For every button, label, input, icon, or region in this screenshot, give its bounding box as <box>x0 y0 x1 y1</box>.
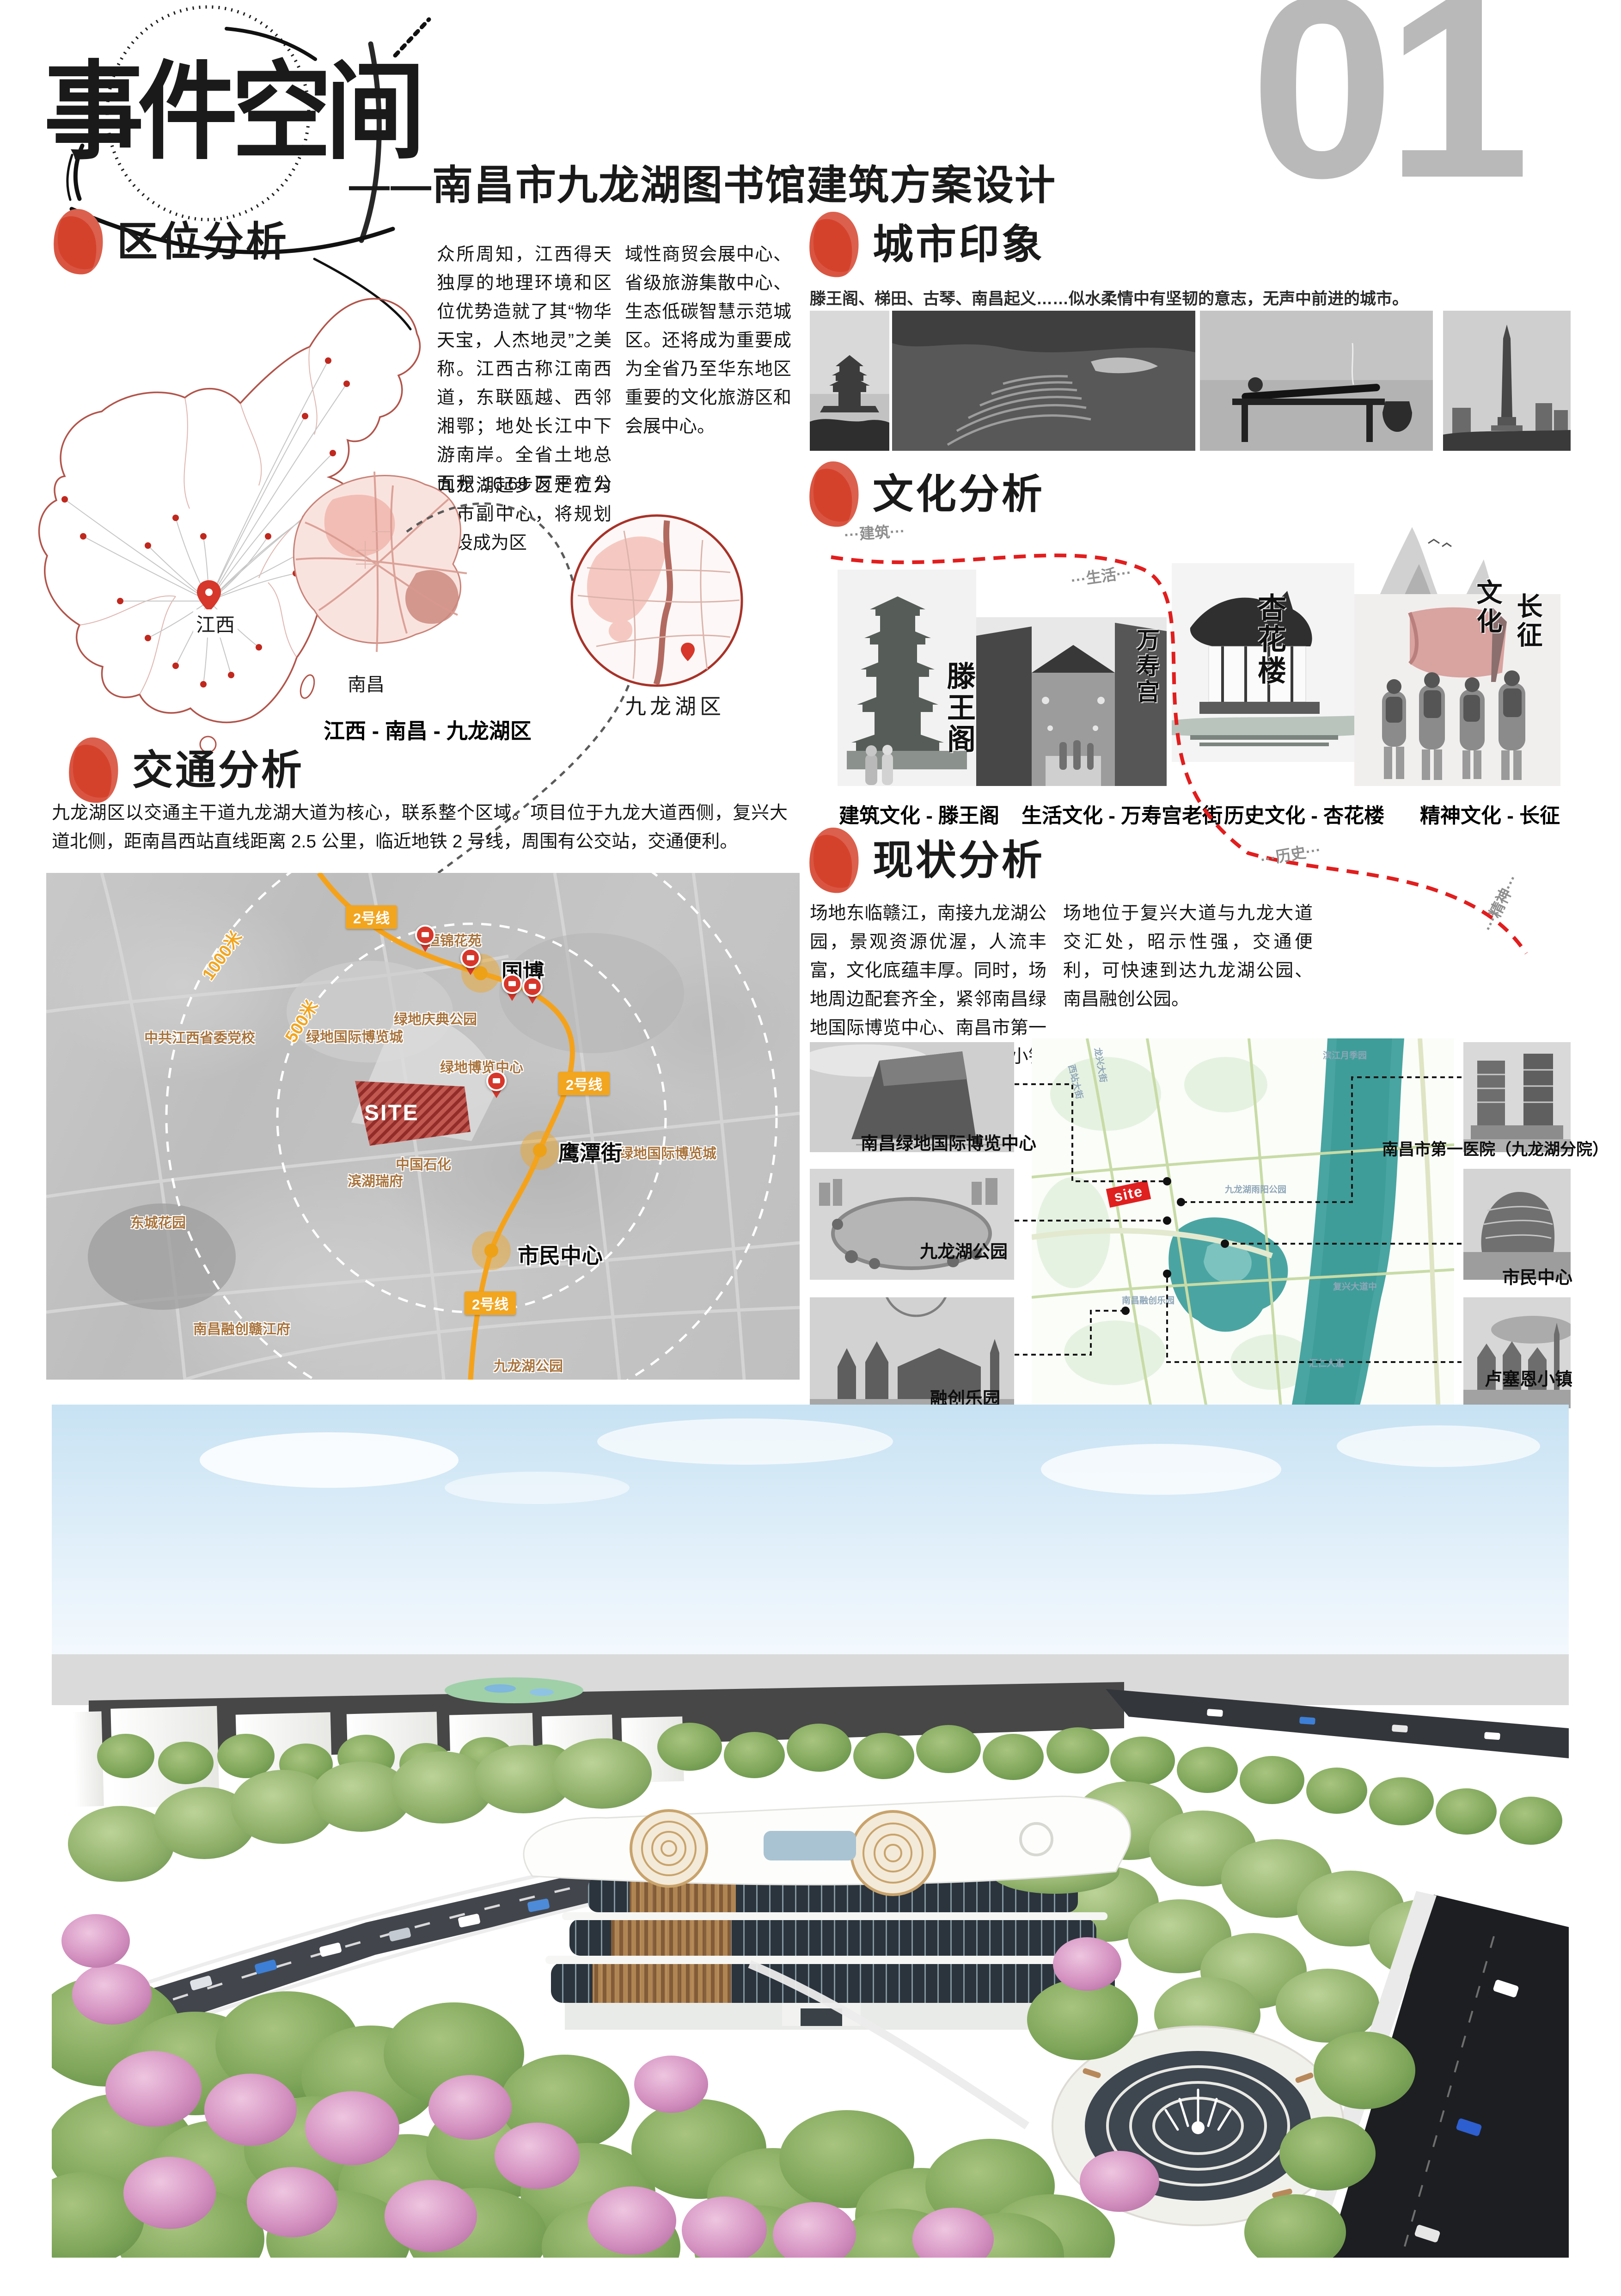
calligraphy-changzheng: 文化 长征 <box>1469 579 1547 650</box>
city-photo-guqin <box>1200 311 1433 451</box>
culture-caption-3: 历史文化 - 杏花楼 <box>1224 799 1384 829</box>
page-number: 01 <box>1250 0 1522 216</box>
map-place-label: 九龙湖公园 <box>494 1355 563 1375</box>
map-place-label: 绿地国际博览城 <box>306 1025 403 1046</box>
street-label: 汇仁大道 <box>1309 1357 1344 1369</box>
calligraphy-tengwangge: 滕王阁 <box>937 661 979 755</box>
section-title-location: 区位分析 <box>117 221 289 262</box>
section-header-city: 城市印象 <box>809 212 1045 277</box>
status-photo-jiulong-lake-park <box>810 1169 1014 1280</box>
jiulong-lake-inset-map <box>569 512 745 689</box>
route-label-life: ···生活··· <box>1069 560 1132 590</box>
street-label: 九龙湖雨阳公园 <box>1225 1183 1286 1195</box>
metro-line-badge: 2号线 <box>465 1291 516 1315</box>
status-photo-label: 南昌绿地国际博览中心 <box>861 1129 1036 1154</box>
section-header-traffic: 交通分析 <box>68 737 304 803</box>
status-photo-label: 卢塞恩小镇 <box>1485 1365 1572 1390</box>
section-title-status: 现状分析 <box>873 840 1045 881</box>
poster-page: 事件空间 ——南昌市九龙湖图书馆建筑方案设计 01 区位分析 众所周知，江西得天… <box>0 0 1621 2296</box>
aerial-rendering-library <box>52 1405 1569 2258</box>
bus-stop-pin-icon <box>415 925 435 952</box>
map-place-label: 中国石化 <box>396 1153 451 1173</box>
city-photo-monument-tower <box>1443 311 1571 451</box>
bus-stop-pin-icon <box>460 948 481 975</box>
location-paragraph-3: 域性商贸会展中心、省级旅游集散中心、生态低碳智慧示范城区。还将成为重要成为全省乃… <box>625 240 791 441</box>
city-photo-tengwang-pavilion <box>810 311 889 451</box>
street-label: 南昌融创乐园 <box>1122 1294 1174 1306</box>
traffic-paragraph: 九龙湖区以交通主干道九龙湖大道为核心，联系整个区域。项目位于九龙大道西侧，复兴大… <box>52 799 788 856</box>
map-place-label: 绿地国际博览城 <box>619 1142 716 1162</box>
bus-stop-pin-icon <box>522 976 543 1004</box>
poster-subtitle: ——南昌市九龙湖图书馆建筑方案设计 <box>349 153 1056 211</box>
province-label: 江西 <box>193 609 238 638</box>
culture-caption-1: 建筑文化 - 滕王阁 <box>839 799 999 829</box>
map-place-label: 滨湖瑞府 <box>348 1170 403 1190</box>
section-title-culture: 文化分析 <box>873 474 1045 515</box>
section-title-traffic: 交通分析 <box>132 750 304 791</box>
red-ink-seal-icon <box>65 735 122 806</box>
section-title-city: 城市印象 <box>873 224 1045 265</box>
status-photo-label: 南昌市第一医院（九龙湖分院） <box>1382 1136 1609 1160</box>
status-photo-first-hospital <box>1463 1042 1571 1152</box>
map-place-label: 绿地庆典公园 <box>394 1008 477 1028</box>
red-ink-seal-icon <box>49 206 107 277</box>
status-photo-label: 市民中心 <box>1502 1263 1572 1289</box>
traffic-satellite-map: 2号线 2号线 2号线 1000米 500米 恒锦花苑 中共江西省委党校 绿地庆… <box>46 873 800 1380</box>
section-header-status: 现状分析 <box>809 828 1045 893</box>
map-place-label: 南昌融创赣江府 <box>193 1318 290 1338</box>
site-area-label: SITE <box>364 1100 419 1126</box>
street-label: 复兴大道中 <box>1333 1280 1377 1292</box>
route-label-history: ···历史··· <box>1259 837 1322 870</box>
map-place-label: 中共江西省委党校 <box>144 1026 255 1047</box>
section-header-location: 区位分析 <box>53 209 289 275</box>
status-photo-label: 九龙湖公园 <box>920 1237 1008 1263</box>
red-ink-seal-icon <box>805 459 863 530</box>
street-label: 滨江月季园 <box>1323 1049 1367 1061</box>
map-place-label: 东城花园 <box>130 1211 186 1232</box>
bus-stop-pin-icon <box>502 974 522 1001</box>
city-caption: 滕王阁、梯田、古琴、南昌起义……似水柔情中有坚韧的意志，无声中前进的城市。 <box>810 286 1408 309</box>
station-label-yingtanjie: 鹰潭街 <box>558 1136 622 1167</box>
status-paragraph-2: 场地位于复兴大道与九龙大道交汇处，昭示性强，交通便利，可快速到达九龙湖公园、南昌… <box>1063 899 1313 1014</box>
city-photo-terraced-fields <box>892 311 1195 451</box>
culture-caption-4: 精神文化 - 长征 <box>1420 799 1560 829</box>
red-ink-seal-icon <box>805 825 863 896</box>
poster-title: 事件空间 <box>44 59 419 166</box>
status-photo-lucerne-town <box>1463 1297 1571 1408</box>
map-place-label: 绿地博览中心 <box>440 1056 523 1076</box>
culture-caption-2: 生活文化 - 万寿宫老街 <box>1022 799 1223 829</box>
section-header-culture: 文化分析 <box>809 461 1045 527</box>
status-site-map: 滨江月季园 西站大街 龙兴大街 九龙湖雨阳公园 复兴大道中 汇仁大道 南昌融创乐… <box>1032 1038 1454 1412</box>
inset-label: 九龙湖区 <box>625 690 725 720</box>
station-label-shiminzhongxin: 市民中心 <box>518 1239 603 1270</box>
location-map-caption: 江西 - 南昌 - 九龙湖区 <box>324 714 532 745</box>
red-ink-seal-icon <box>805 209 863 280</box>
route-label-architecture: ···建筑··· <box>843 518 905 545</box>
bus-stop-pin-icon <box>486 1071 507 1098</box>
metro-line-badge: 2号线 <box>558 1072 610 1095</box>
metro-line-badge: 2号线 <box>346 905 397 929</box>
calligraphy-xinghualou: 杏花楼 <box>1248 593 1290 687</box>
route-label-spirit: ···精神··· <box>1476 870 1523 935</box>
